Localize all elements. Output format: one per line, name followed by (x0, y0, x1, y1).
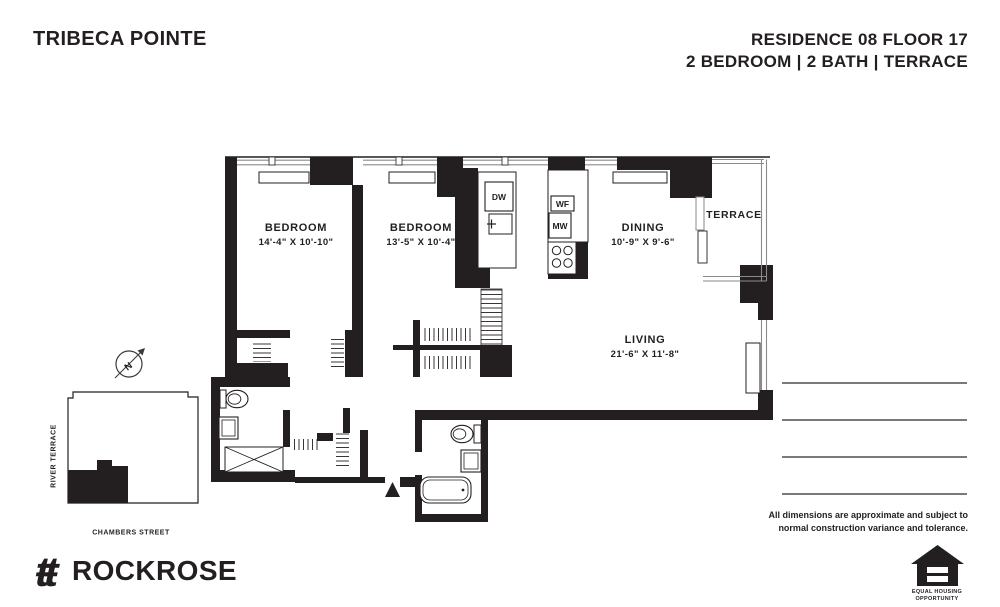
toilet-tank (474, 425, 481, 443)
entry-triangle-icon (385, 482, 400, 497)
street-label-chambers-street: CHAMBERS STREET (92, 530, 170, 537)
compass-north-label: N (123, 360, 135, 373)
equal-housing-icon (911, 545, 964, 586)
room-label-bedroom-2: BEDROOM 13'-5" X 10'-4" (386, 222, 455, 249)
floorplan-page: TRIBECA POINTE RESIDENCE 08 FLOOR 17 2 B… (0, 0, 1000, 607)
appliance-label-dw: DW (492, 192, 506, 202)
appliance-label-mw: MW (552, 221, 567, 231)
toilet-tank (220, 390, 226, 408)
room-label-terrace: TERRACE (706, 209, 762, 221)
esplanade-lines (782, 383, 967, 494)
bathroom1-fixtures (219, 390, 283, 472)
room-label-bedroom-1: BEDROOM 14'-4" X 10'-10" (259, 222, 334, 249)
disclaimer-line-1: All dimensions are approximate and subje… (768, 509, 968, 522)
disclaimer: All dimensions are approximate and subje… (768, 509, 968, 534)
stove (548, 242, 576, 274)
kitchen-fixtures (478, 170, 588, 274)
rockrose-mark-glyphs: ŧŧ (31, 548, 64, 594)
site-plan (68, 392, 198, 503)
room-label-dining: DINING 10'-9" X 9'-6" (611, 222, 675, 249)
bathroom2-fixtures (420, 425, 481, 503)
equal-housing-line-1: EQUAL HOUSING (907, 589, 967, 596)
compass-icon: N (115, 348, 145, 378)
equal-housing-text: EQUAL HOUSING OPPORTUNITY (907, 589, 967, 602)
appliance-label-wf: WF (556, 199, 569, 209)
disclaimer-line-2: normal construction variance and toleran… (768, 522, 968, 535)
window-mullions (269, 157, 508, 165)
equal-housing-line-2: OPPORTUNITY (907, 596, 967, 603)
terrace-door (696, 197, 707, 263)
rockrose-logo-icon: ŧŧ (31, 548, 64, 594)
rockrose-brand-name: ROCKROSE (72, 555, 237, 587)
floor-plan (211, 157, 773, 522)
room-label-living: LIVING 21'-6" X 11'-8" (611, 334, 680, 361)
street-label-river-terrace: RIVER TERRACE (51, 424, 58, 488)
